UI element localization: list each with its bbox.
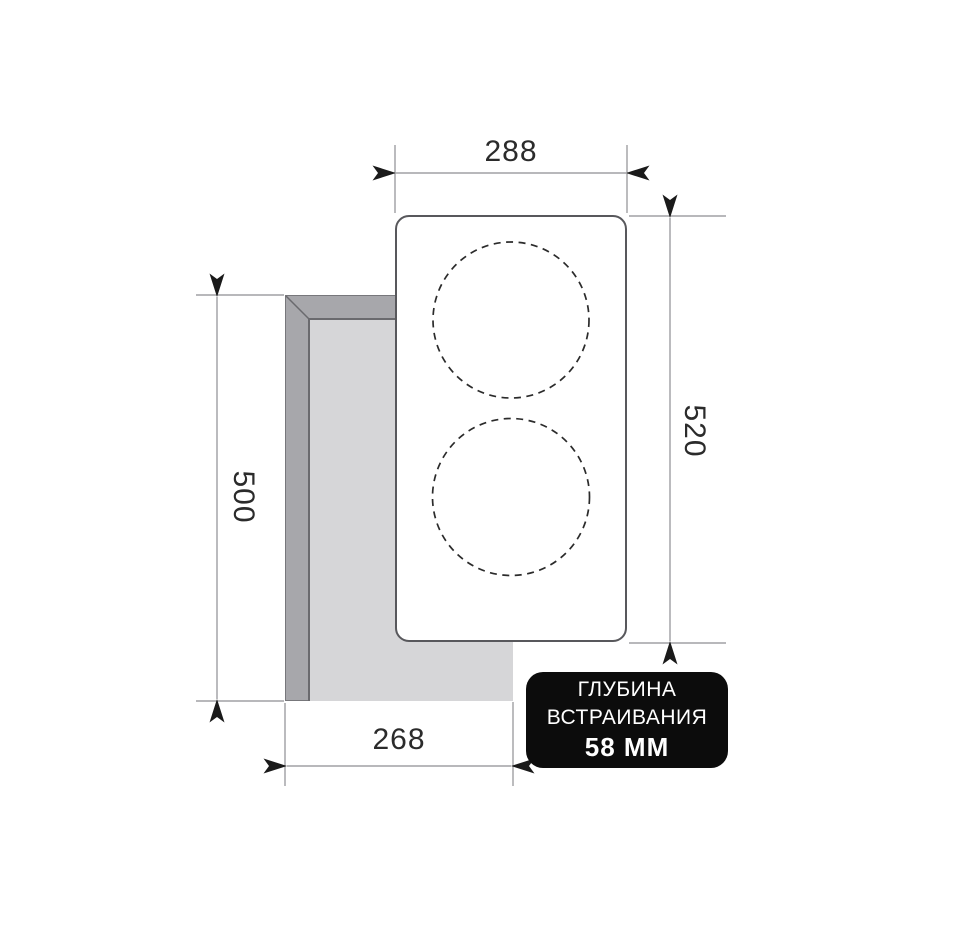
dim-label-top-width: 288 — [484, 135, 537, 169]
cooktop-panel — [395, 215, 627, 642]
dim-label-right-height: 520 — [677, 404, 711, 457]
badge-line-3: 58 ММ — [585, 733, 669, 763]
dim-label-bottom-width: 268 — [372, 723, 425, 757]
diagram-canvas: 288 520 500 268 ГЛУБИНА ВСТРАИВАНИЯ 58 М… — [0, 0, 970, 949]
depth-badge: ГЛУБИНА ВСТРАИВАНИЯ 58 ММ — [526, 672, 728, 768]
badge-line-1: ГЛУБИНА — [578, 677, 677, 702]
badge-line-2: ВСТРАИВАНИЯ — [547, 705, 708, 730]
dim-label-left-height: 500 — [226, 470, 260, 523]
